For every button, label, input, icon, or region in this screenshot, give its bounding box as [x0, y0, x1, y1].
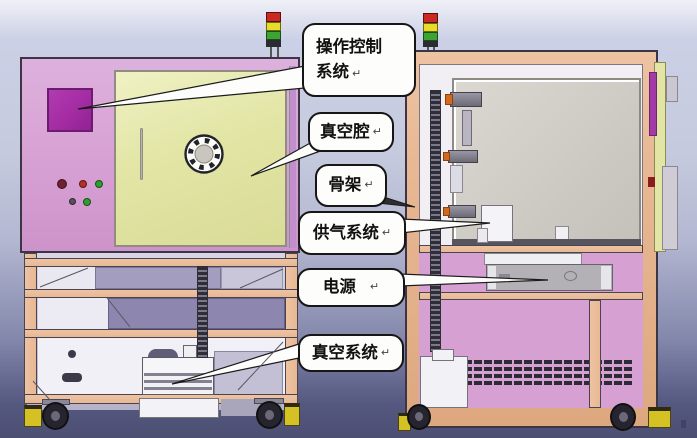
- return-mark-icon: ↵: [373, 124, 382, 141]
- return-mark-icon: ↵: [381, 345, 390, 362]
- callout-text: 电源: [323, 275, 356, 300]
- return-mark-icon: ↵: [382, 225, 391, 242]
- leader-vacuum-system: [172, 344, 299, 384]
- return-mark-icon: ↵: [352, 67, 361, 80]
- return-mark-icon: ↵: [364, 177, 373, 194]
- callout-operation-control-system: 操作控制 系统↵: [302, 23, 416, 97]
- callout-text: 系统: [316, 62, 349, 81]
- callout-text: 骨架: [328, 173, 361, 198]
- callout-text: 真空腔: [320, 120, 370, 145]
- callout-vacuum-chamber: 真空腔↵: [308, 112, 394, 152]
- callout-text: 操作控制: [316, 37, 382, 56]
- leader-gas-supply-system: [401, 219, 490, 233]
- callout-vacuum-system: 真空系统↵: [298, 334, 404, 372]
- return-mark-icon: ↵: [370, 279, 379, 296]
- callout-skeleton-frame: 骨架↵: [315, 164, 387, 207]
- panel-brace-lines: [33, 268, 283, 400]
- callout-text-line: 操作控制: [316, 35, 382, 60]
- callout-text: 供气系统: [313, 221, 379, 246]
- diagram-canvas: 操作控制 系统↵ 真空腔↵ 骨架↵ 供气系统↵ 电源↵ 真空系统↵: [0, 0, 697, 438]
- callout-gas-supply-system: 供气系统↵: [298, 211, 406, 255]
- leader-power-supply: [400, 274, 548, 286]
- callout-text-line: 系统↵: [316, 60, 361, 85]
- callout-text: 真空系统: [312, 341, 378, 366]
- callout-power-supply: 电源↵: [297, 268, 405, 307]
- leader-operation-control-system: [78, 66, 305, 109]
